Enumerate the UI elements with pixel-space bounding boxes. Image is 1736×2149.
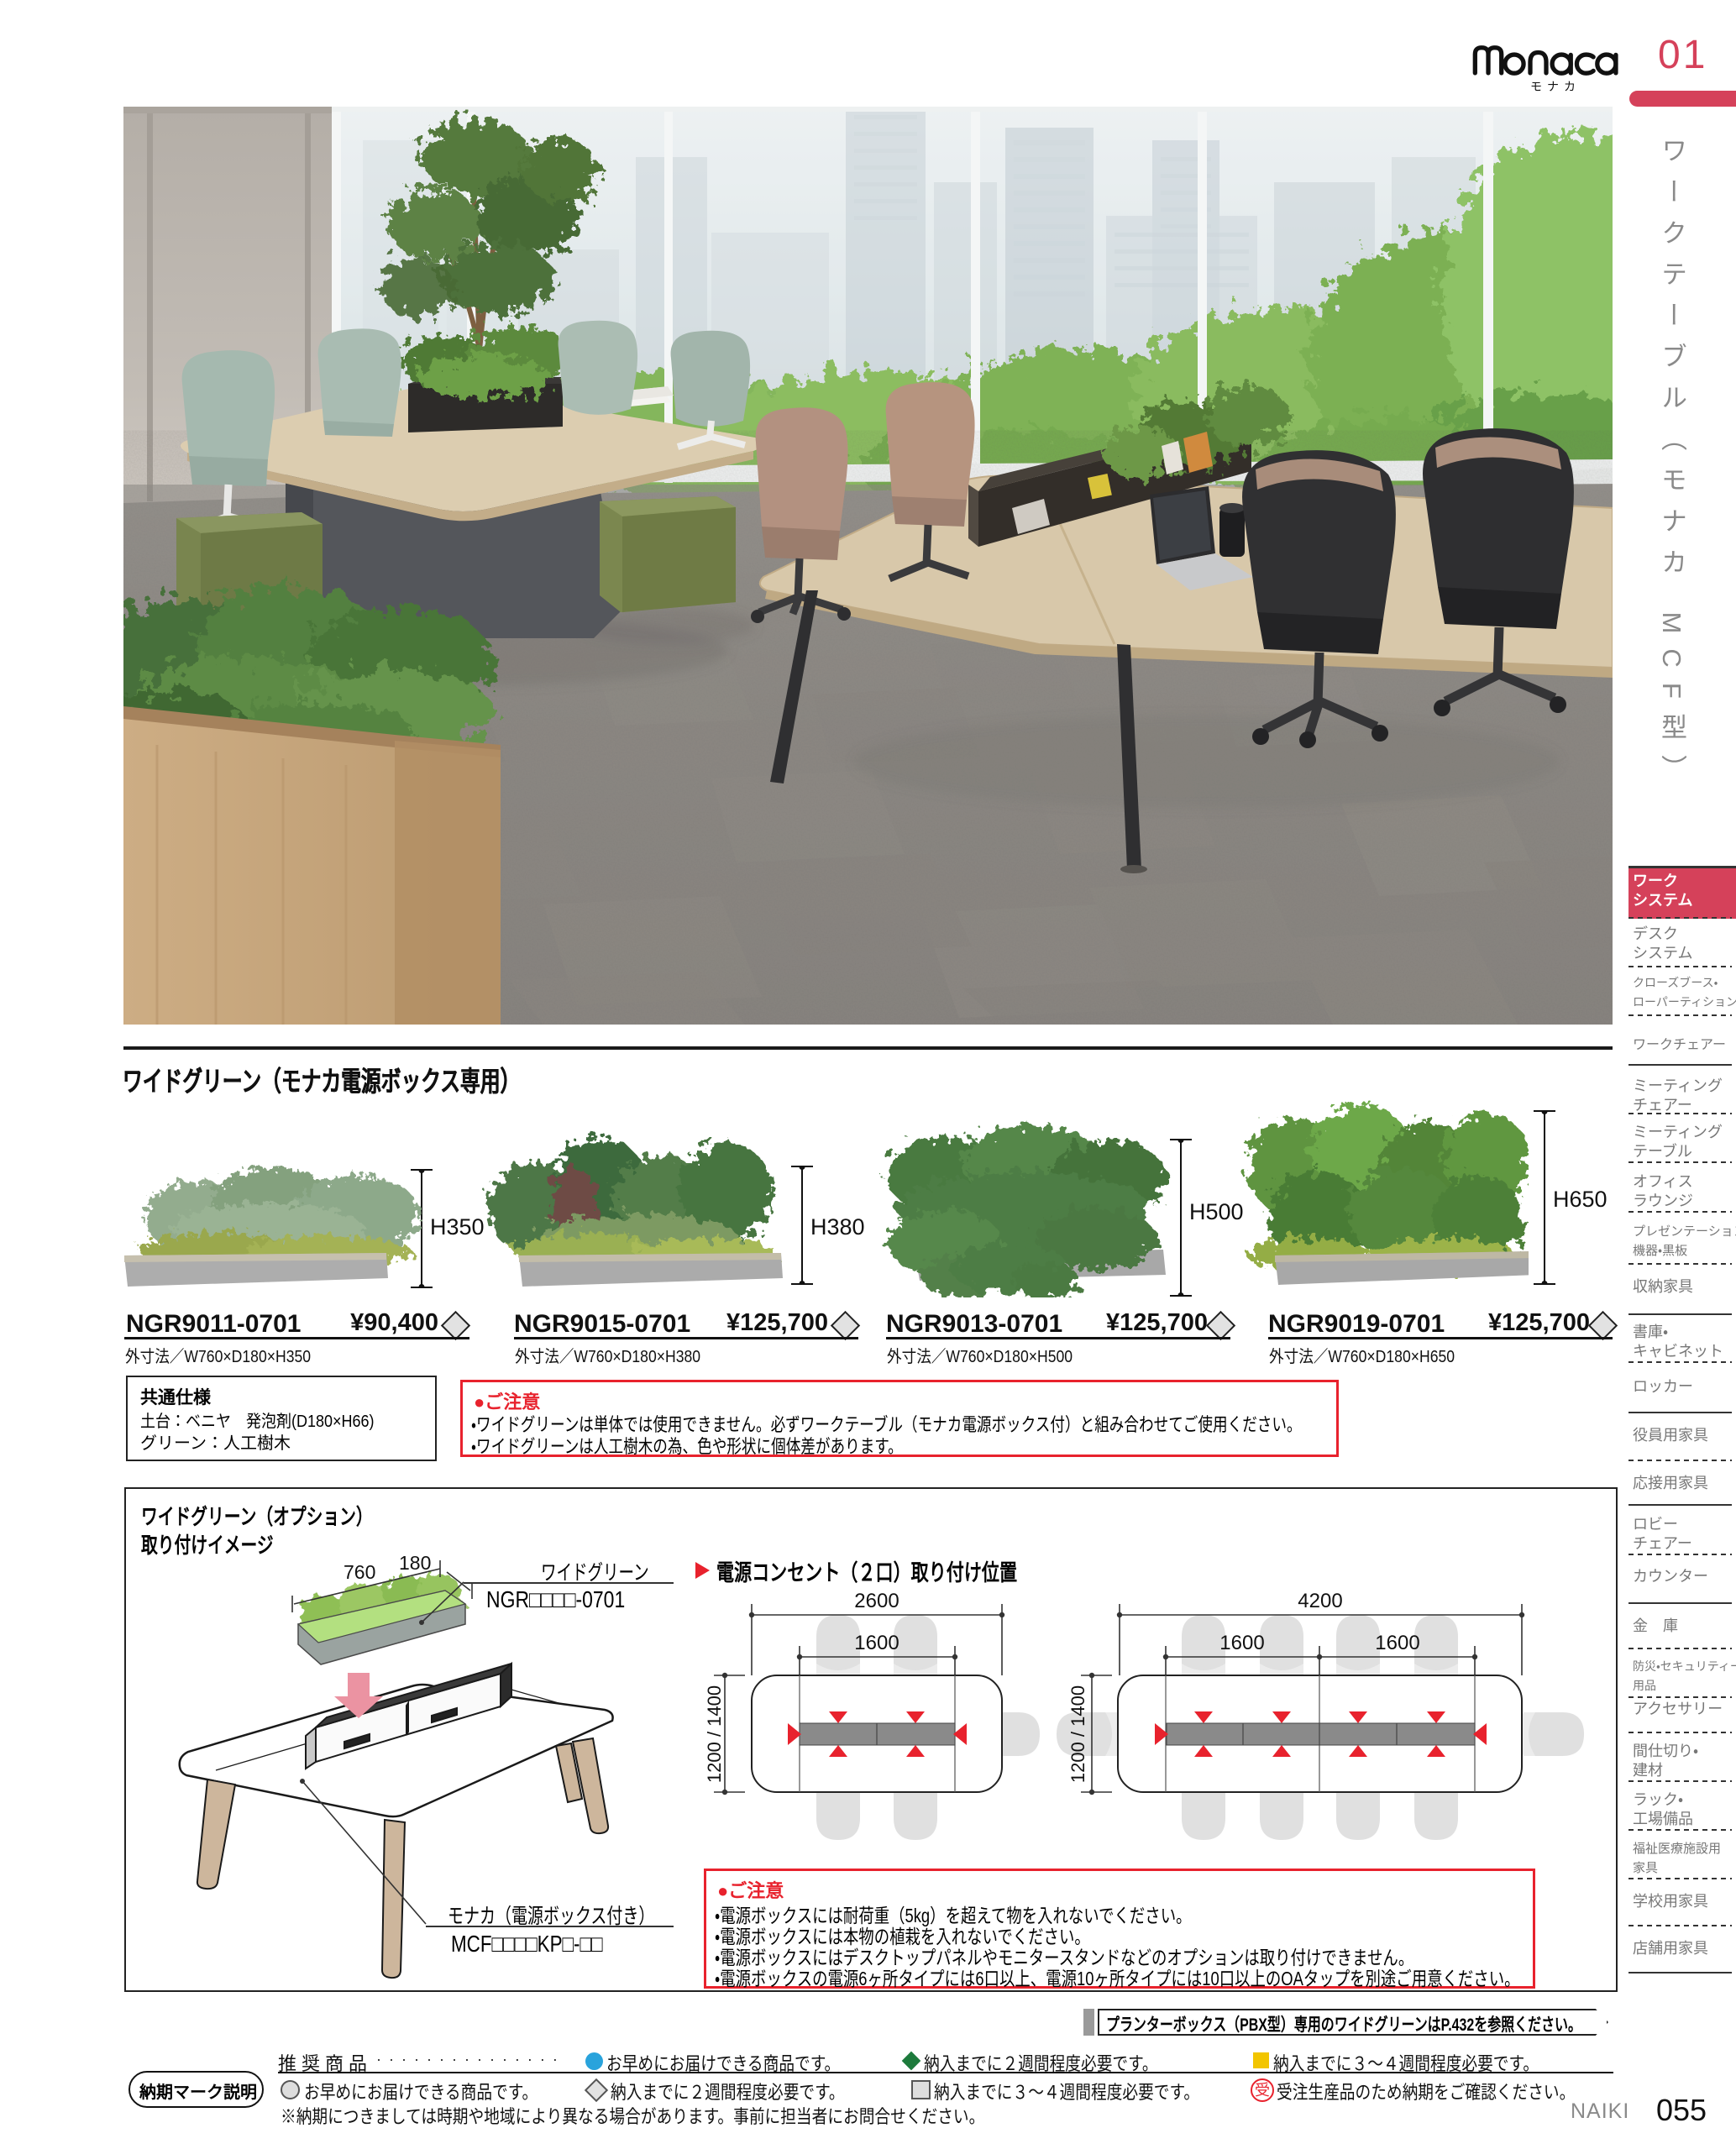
svg-text:1600: 1600	[1219, 1632, 1264, 1654]
svg-text:760: 760	[344, 1561, 375, 1583]
svg-text:180: 180	[399, 1552, 431, 1574]
svg-text:1600: 1600	[1375, 1632, 1419, 1654]
svg-text:1200 / 1400: 1200 / 1400	[707, 1685, 725, 1783]
svg-text:2600: 2600	[854, 1590, 899, 1612]
svg-text:1600: 1600	[854, 1632, 899, 1654]
svg-text:1200 / 1400: 1200 / 1400	[1067, 1685, 1088, 1783]
svg-text:4200: 4200	[1298, 1590, 1342, 1612]
